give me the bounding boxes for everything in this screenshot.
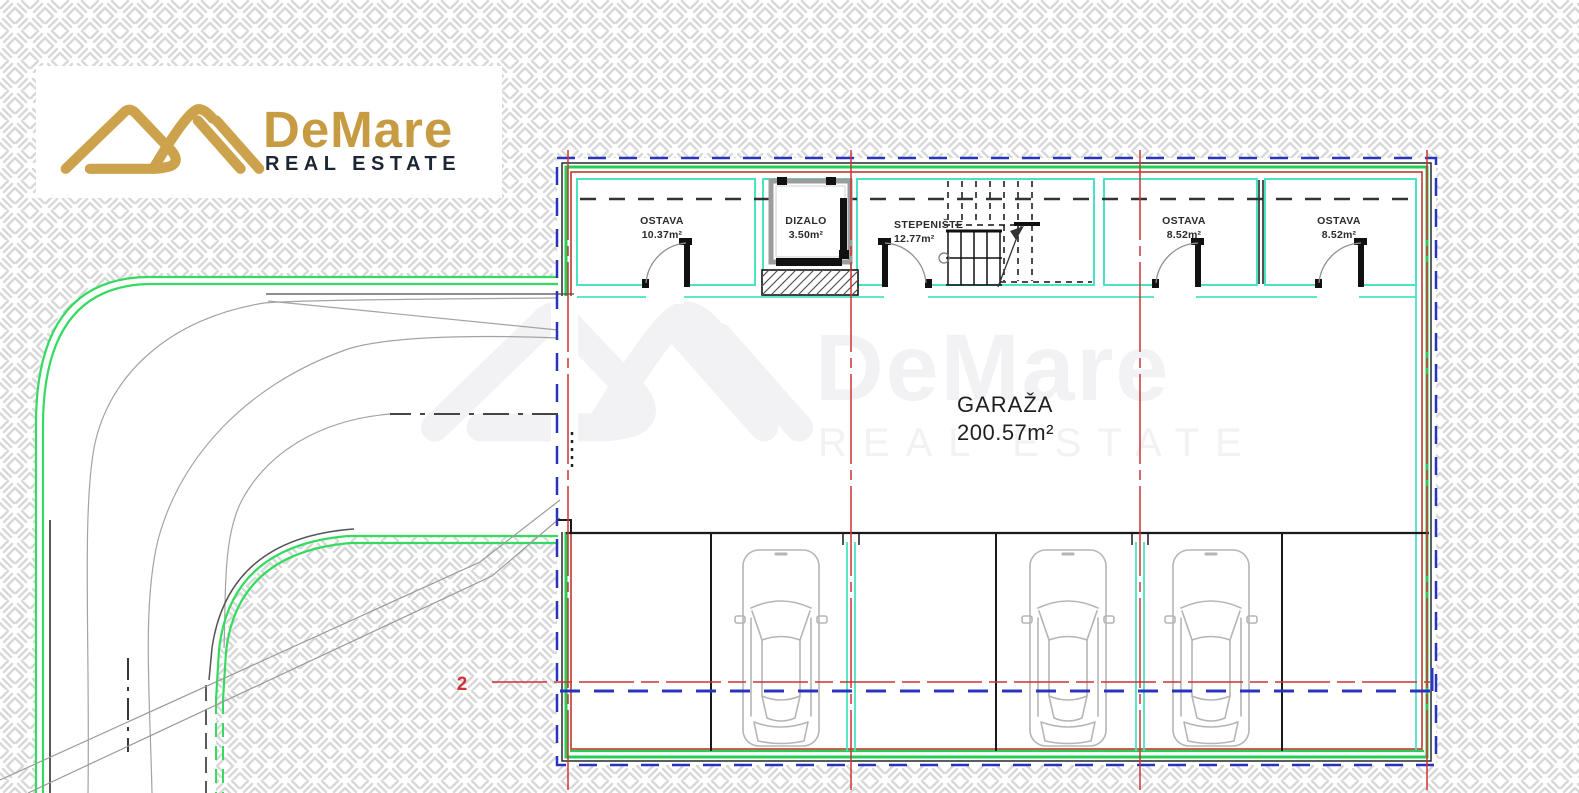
elevator-door	[840, 198, 847, 254]
hatched-landing	[744, 270, 877, 295]
room-area-stepeniste: 12.77m²	[894, 233, 935, 245]
room-label-dizalo: DIZALO	[785, 215, 826, 227]
room-label-ostava-2: OSTAVA	[1162, 215, 1206, 227]
floor-plan-page: DeMare REAL ESTATE	[0, 0, 1579, 793]
logo-tagline-text: REAL ESTATE	[265, 153, 461, 175]
logo: DeMare REAL ESTATE	[36, 66, 502, 198]
room-label-ostava-3: OSTAVA	[1317, 215, 1361, 227]
garage-area: 200.57m²	[957, 420, 1054, 445]
room-area-ostava-1: 10.37m²	[642, 229, 683, 241]
logo-brand-text: DeMare	[263, 101, 453, 158]
room-label-ostava-1: OSTAVA	[640, 215, 684, 227]
room-area-dizalo: 3.50m²	[789, 229, 824, 241]
section-label: 2	[457, 674, 468, 695]
room-area-ostava-2: 8.52m²	[1167, 229, 1202, 241]
floor-plan-canvas: DeMare REAL ESTATE	[0, 0, 1579, 793]
room-label-stepeniste: STEPENIŠTE	[894, 218, 963, 231]
garage-label: GARAŽA	[957, 392, 1053, 417]
room-area-ostava-3: 8.52m²	[1322, 229, 1357, 241]
